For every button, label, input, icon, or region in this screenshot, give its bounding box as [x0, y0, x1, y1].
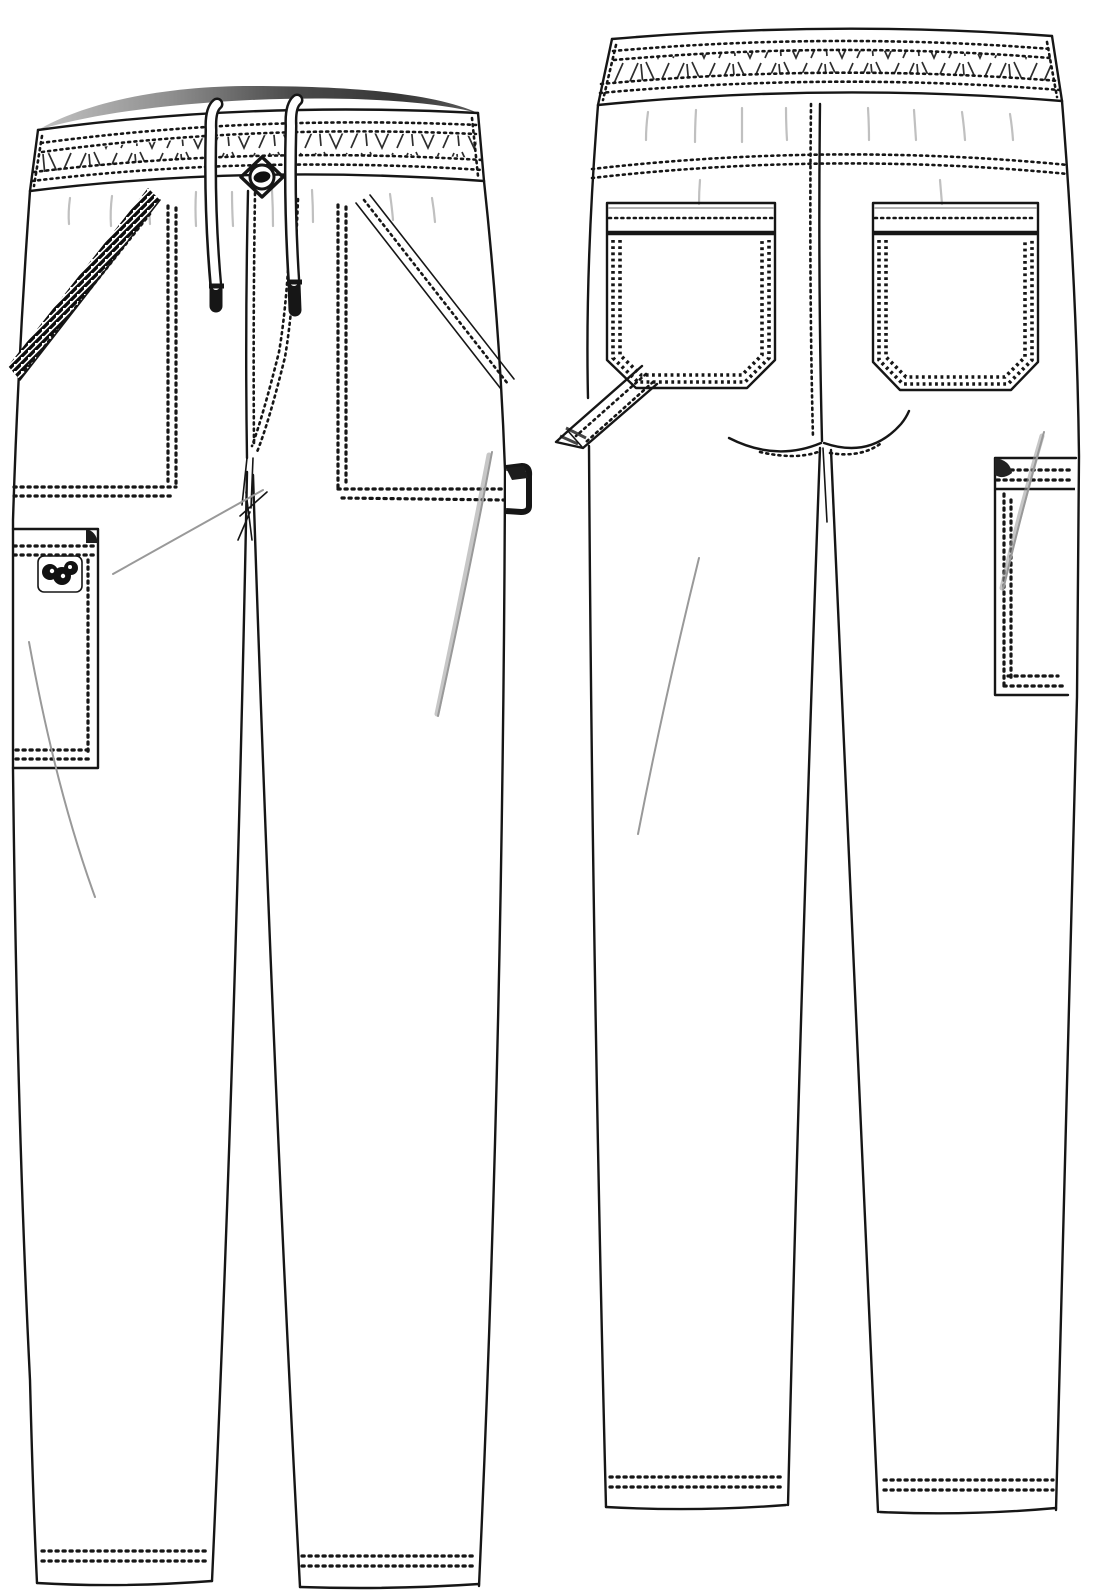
side-hammer-loop-front [506, 466, 529, 512]
flat-sketch-canvas [0, 0, 1100, 1595]
pants-flat-sketch [0, 0, 1100, 1595]
page-background [0, 0, 1100, 1595]
